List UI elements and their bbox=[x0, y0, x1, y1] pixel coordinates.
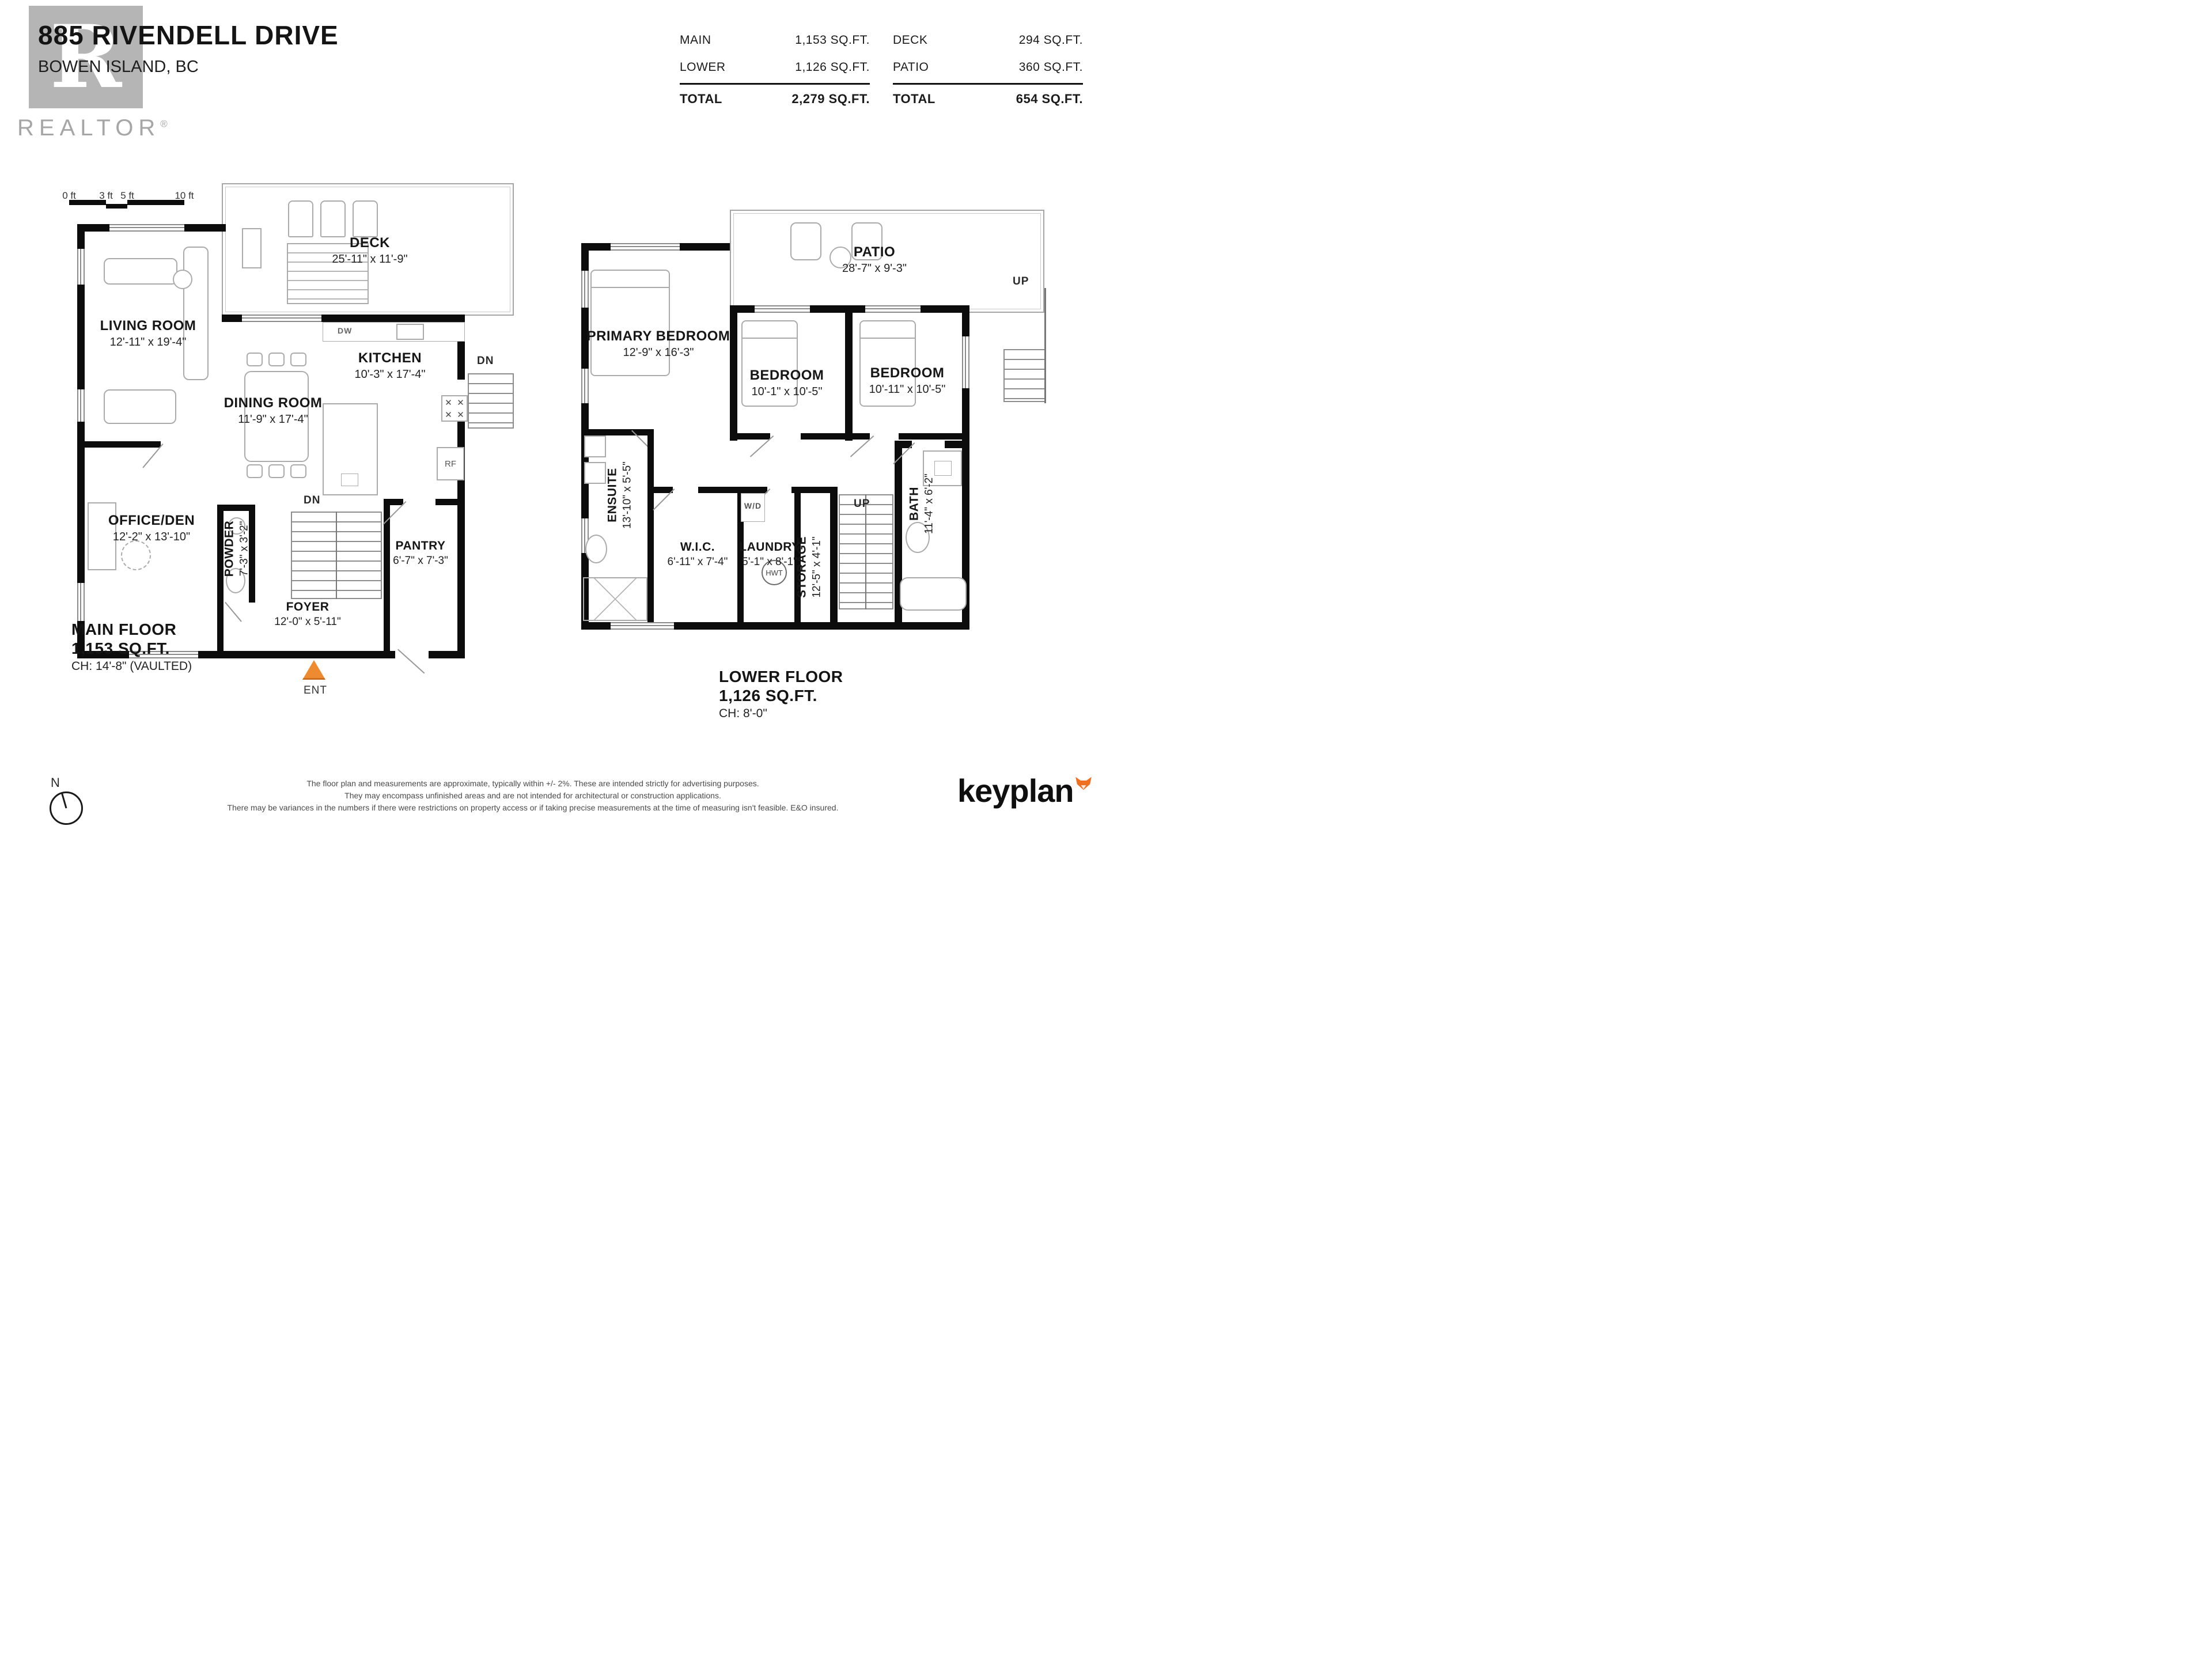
bath-label: BATH bbox=[908, 452, 922, 556]
stair-rail bbox=[336, 512, 337, 599]
window bbox=[77, 249, 85, 285]
exterior-up-label: UP bbox=[1013, 275, 1029, 288]
row-value: 1,153 SQ.FT. bbox=[795, 33, 870, 47]
wall bbox=[698, 487, 767, 493]
dining-chair bbox=[247, 464, 263, 478]
vanity-sink bbox=[584, 462, 606, 484]
window bbox=[611, 622, 674, 630]
primary-bedroom-label-group: PRIMARY BEDROOM 12'-9" x 16'-3" bbox=[584, 328, 733, 359]
stove-burners: ✕✕ ✕✕ bbox=[441, 395, 468, 422]
main-floor-title-group: MAIN FLOOR 1,153 SQ.FT. CH: 14'-8" (VAUL… bbox=[71, 620, 192, 673]
table-row-lower: LOWER 1,126 SQ.FT. bbox=[680, 54, 870, 81]
burner-icon: ✕ bbox=[442, 408, 454, 421]
total-label: TOTAL bbox=[680, 92, 722, 107]
storage-dims: 12'-5" x 4'-1" bbox=[811, 507, 824, 628]
kitchen-dims: 10'-3" x 17'-4" bbox=[321, 368, 459, 381]
total-label: TOTAL bbox=[893, 92, 935, 107]
wall bbox=[945, 441, 969, 448]
foyer-label-group: FOYER 12'-0" x 5'-11" bbox=[250, 600, 365, 628]
dishwasher-label: DW bbox=[338, 326, 352, 335]
bedroom-label-group: BEDROOM 10'-11" x 10'-5" bbox=[853, 365, 962, 396]
powder-dims: 7'-3" x 3'-2" bbox=[238, 500, 251, 598]
foyer-label: FOYER bbox=[250, 600, 365, 614]
exterior-dn-label: DN bbox=[477, 355, 494, 368]
wall bbox=[435, 499, 465, 505]
realtor-wordmark: REALTOR® bbox=[17, 115, 168, 141]
wall bbox=[85, 441, 161, 448]
scale-bar-segment bbox=[127, 200, 184, 204]
dining-chair bbox=[290, 353, 306, 366]
side-table bbox=[173, 270, 192, 289]
wall bbox=[647, 487, 673, 493]
scale-bar-segment bbox=[106, 204, 127, 209]
patio-dims: 28'-7" x 9'-3" bbox=[805, 262, 944, 275]
row-value: 360 SQ.FT. bbox=[1019, 60, 1083, 74]
wall bbox=[730, 433, 770, 440]
foyer-dims: 12'-0" x 5'-11" bbox=[250, 616, 365, 628]
bedroom-label: BEDROOM bbox=[853, 365, 962, 381]
lower-floor-title: LOWER FLOOR bbox=[719, 667, 843, 686]
door-swing bbox=[225, 602, 242, 622]
table-row-deck: DECK 294 SQ.FT. bbox=[893, 26, 1083, 54]
exterior-stairs-up bbox=[1003, 349, 1046, 402]
primary-bedroom-dims: 12'-9" x 16'-3" bbox=[584, 346, 733, 359]
wall bbox=[647, 429, 654, 622]
stairs-dn-label: DN bbox=[304, 494, 320, 507]
entry-arrow-icon bbox=[302, 660, 325, 680]
loveseat bbox=[104, 389, 176, 424]
hot-water-tank-label: HWT bbox=[766, 569, 783, 577]
table-row-exterior-total: TOTAL 654 SQ.FT. bbox=[893, 85, 1083, 113]
keyplan-logo: keyplan bbox=[957, 775, 1092, 807]
area-summary-table: MAIN 1,153 SQ.FT. LOWER 1,126 SQ.FT. TOT… bbox=[680, 26, 1083, 113]
stair-rail bbox=[1044, 288, 1046, 403]
table-row-patio: PATIO 360 SQ.FT. bbox=[893, 54, 1083, 81]
row-value: 1,126 SQ.FT. bbox=[795, 60, 870, 74]
deck-label-group: DECK 25'-11" x 11'-9" bbox=[301, 235, 439, 266]
pantry-label: PANTRY bbox=[363, 539, 478, 553]
fox-icon bbox=[1075, 776, 1092, 791]
toilet bbox=[585, 535, 607, 563]
disclaimer-line: There may be variances in the numbers if… bbox=[207, 802, 858, 814]
deck-dims: 25'-11" x 11'-9" bbox=[301, 253, 439, 266]
primary-bedroom-label: PRIMARY BEDROOM bbox=[584, 328, 733, 344]
page-title-address: 885 RIVENDELL DRIVE bbox=[38, 20, 339, 51]
window bbox=[611, 243, 680, 251]
kitchen-label: KITCHEN bbox=[321, 350, 459, 366]
exterior-stairs-down bbox=[468, 373, 514, 429]
bath-label-group: BATH 11'-4" x 6'-2" bbox=[908, 452, 936, 556]
wall bbox=[384, 499, 403, 505]
pantry-dims: 6'-7" x 7'-3" bbox=[363, 555, 478, 567]
window bbox=[581, 271, 589, 308]
wall bbox=[830, 487, 838, 622]
deck-lounge-chair bbox=[288, 200, 313, 237]
main-floor-area: 1,153 SQ.FT. bbox=[71, 639, 192, 658]
wall bbox=[801, 433, 870, 440]
shower bbox=[583, 577, 647, 621]
wall bbox=[457, 401, 465, 658]
bed-pillow-line bbox=[743, 321, 797, 339]
bath-dims: 11'-4" x 6'-2" bbox=[923, 452, 936, 556]
table-row-interior-total: TOTAL 2,279 SQ.FT. bbox=[680, 85, 870, 113]
compass-north-label: N bbox=[51, 775, 60, 790]
chaise-sofa bbox=[183, 247, 209, 380]
disclaimer-line: They may encompass unfinished areas and … bbox=[207, 790, 858, 802]
main-floor-ceiling-height: CH: 14'-8" (VAULTED) bbox=[71, 660, 192, 673]
row-label: LOWER bbox=[680, 60, 726, 74]
scale-bar-segment bbox=[69, 200, 106, 204]
row-label: DECK bbox=[893, 33, 927, 47]
lower-floor-area: 1,126 SQ.FT. bbox=[719, 686, 843, 705]
living-room-label-group: LIVING ROOM 12'-11" x 19'-4" bbox=[79, 318, 217, 349]
bedroom-label-group: BEDROOM 10'-1" x 10'-5" bbox=[735, 368, 839, 399]
total-value: 2,279 SQ.FT. bbox=[791, 92, 870, 107]
kitchen-sink bbox=[396, 324, 424, 340]
disclaimer-text: The floor plan and measurements are appr… bbox=[207, 778, 858, 814]
patio-label: PATIO bbox=[805, 244, 944, 260]
dining-chair bbox=[268, 353, 285, 366]
island-sink bbox=[341, 474, 358, 486]
kitchen-label-group: KITCHEN 10'-3" x 17'-4" bbox=[321, 350, 459, 381]
compass-needle bbox=[61, 793, 67, 809]
wall bbox=[845, 313, 853, 441]
row-label: MAIN bbox=[680, 33, 711, 47]
dining-chair bbox=[268, 464, 285, 478]
interior-areas-column: MAIN 1,153 SQ.FT. LOWER 1,126 SQ.FT. TOT… bbox=[680, 26, 870, 113]
dining-room-label: DINING ROOM bbox=[204, 395, 342, 411]
lower-floor-ceiling-height: CH: 8'-0" bbox=[719, 707, 843, 721]
bedroom-label: BEDROOM bbox=[735, 368, 839, 384]
disclaimer-line: The floor plan and measurements are appr… bbox=[207, 778, 858, 790]
keyplan-wordmark: keyplan bbox=[957, 775, 1074, 807]
powder-label-group: POWDER 7'-3" x 3'-2" bbox=[223, 500, 251, 598]
registered-symbol: ® bbox=[160, 119, 168, 130]
office-den-label-group: OFFICE/DEN 12'-2" x 13'-10" bbox=[82, 513, 221, 544]
window bbox=[77, 389, 85, 422]
floor-plan-page: R REALTOR® 885 RIVENDELL DRIVE BOWEN ISL… bbox=[0, 0, 1106, 829]
compass-icon bbox=[50, 791, 83, 825]
plant bbox=[121, 540, 151, 570]
wall bbox=[899, 433, 969, 440]
total-value: 654 SQ.FT. bbox=[1016, 92, 1083, 107]
table-row-main: MAIN 1,153 SQ.FT. bbox=[680, 26, 870, 54]
deck-lounge-chair bbox=[353, 200, 378, 237]
bedroom-dims: 10'-11" x 10'-5" bbox=[853, 383, 962, 396]
exterior-areas-column: DECK 294 SQ.FT. PATIO 360 SQ.FT. TOTAL 6… bbox=[893, 26, 1083, 113]
vanity-sink bbox=[584, 435, 606, 457]
sliding-door bbox=[962, 336, 969, 388]
entry-label: ENT bbox=[304, 684, 327, 697]
burner-icon: ✕ bbox=[454, 396, 467, 408]
burner-icon: ✕ bbox=[442, 396, 454, 408]
window bbox=[581, 369, 589, 403]
living-room-dims: 12'-11" x 19'-4" bbox=[79, 336, 217, 349]
storage-label-group: STORAGE 12'-5" x 4'-1" bbox=[796, 507, 824, 628]
window bbox=[865, 305, 921, 313]
ensuite-dims: 13'-10" x 5'-5" bbox=[622, 432, 634, 559]
refrigerator-label: RF bbox=[445, 459, 456, 469]
office-den-label: OFFICE/DEN bbox=[82, 513, 221, 529]
sofa bbox=[104, 258, 177, 285]
window bbox=[109, 224, 184, 232]
dining-chair bbox=[247, 353, 263, 366]
lower-floor-title-group: LOWER FLOOR 1,126 SQ.FT. CH: 8'-0" bbox=[719, 667, 843, 721]
dining-room-dims: 11'-9" x 17'-4" bbox=[204, 413, 342, 426]
sliding-door bbox=[242, 315, 321, 322]
bed-pillow-line bbox=[861, 321, 915, 339]
realtor-wordmark-text: REALTOR bbox=[17, 115, 160, 141]
bathtub bbox=[900, 577, 967, 611]
bed-pillow-line bbox=[592, 271, 669, 288]
row-value: 294 SQ.FT. bbox=[1019, 33, 1083, 47]
main-floor-title: MAIN FLOOR bbox=[71, 620, 192, 639]
dining-room-label-group: DINING ROOM 11'-9" x 17'-4" bbox=[204, 395, 342, 426]
window bbox=[77, 583, 85, 621]
burner-icon: ✕ bbox=[454, 408, 467, 421]
primary-bed bbox=[590, 270, 670, 376]
ensuite-label-group: ENSUITE 13'-10" x 5'-5" bbox=[606, 432, 634, 559]
living-room-label: LIVING ROOM bbox=[79, 318, 217, 334]
bedroom-dims: 10'-1" x 10'-5" bbox=[735, 385, 839, 399]
patio-label-group: PATIO 28'-7" x 9'-3" bbox=[805, 244, 944, 275]
deck-label: DECK bbox=[301, 235, 439, 251]
page-subtitle-city: BOWEN ISLAND, BC bbox=[38, 58, 199, 77]
stair-rail bbox=[865, 494, 866, 609]
stairs-up-label: UP bbox=[854, 498, 870, 510]
row-label: PATIO bbox=[893, 60, 929, 74]
dining-chair bbox=[290, 464, 306, 478]
pantry-label-group: PANTRY 6'-7" x 7'-3" bbox=[363, 539, 478, 567]
refrigerator: RF bbox=[437, 447, 464, 480]
powder-label: POWDER bbox=[223, 500, 237, 598]
storage-label: STORAGE bbox=[796, 507, 809, 628]
ensuite-label: ENSUITE bbox=[606, 432, 620, 559]
window bbox=[755, 305, 810, 313]
washer-dryer-label: W/D bbox=[738, 501, 767, 510]
deck-lounge-chair bbox=[320, 200, 346, 237]
office-den-dims: 12'-2" x 13'-10" bbox=[82, 531, 221, 544]
bath-sink bbox=[934, 461, 952, 476]
bbq-grill bbox=[242, 228, 262, 268]
